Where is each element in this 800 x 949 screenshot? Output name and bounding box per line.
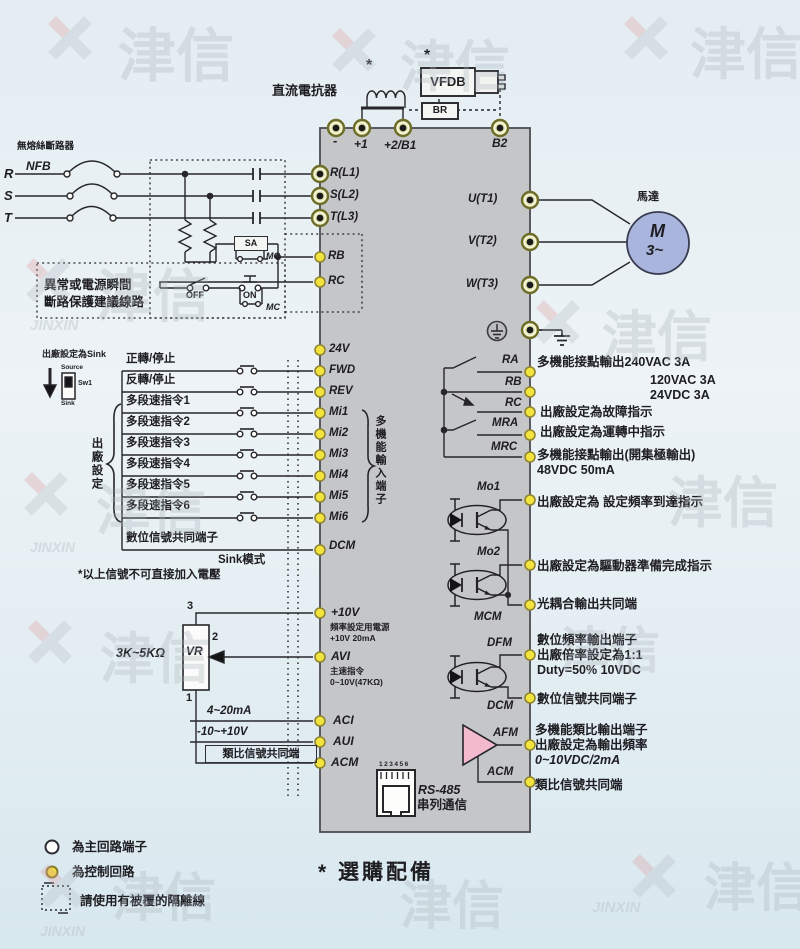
rl1-label: R(L1) (330, 168, 359, 180)
row-dcm-label: 數位信號共同端子 (126, 533, 218, 545)
phase-s-label: S (4, 189, 13, 202)
terminal-mra (525, 430, 535, 440)
afm-desc-3: 0~10VDC/2mA (535, 754, 620, 767)
mcm-label: MCM (474, 612, 501, 624)
mi4-label: Mi4 (329, 470, 348, 482)
terminal-ra (525, 367, 535, 377)
row-mi6-label: 多段速指令6 (126, 501, 190, 513)
star-vfdb: * (424, 48, 430, 64)
dcm-left-label: DCM (329, 541, 355, 553)
avi-label: AVI (331, 650, 350, 662)
row-fwd-label: 正轉/停止 (126, 354, 175, 366)
sa-unit: SA (234, 236, 268, 251)
mc-bottom-label: MC (266, 303, 280, 312)
row-mi4-label: 多段速指令4 (126, 459, 190, 471)
fwd-label: FWD (329, 365, 355, 377)
sw1-label: Sw1 (78, 380, 92, 387)
terminal-mi3 (315, 450, 325, 460)
terminal-mi6 (315, 513, 325, 523)
relay-desc-3: 24VDC 3A (650, 389, 710, 402)
vr-label: VR (186, 645, 203, 657)
terminal-rc-out (525, 407, 535, 417)
terminal-rev (315, 387, 325, 397)
terminal-10v (315, 608, 325, 618)
mra-label: MRA (492, 418, 518, 430)
terminal-plus2b1-label: +2/B1 (384, 139, 416, 151)
10v-label: +10V (331, 606, 359, 618)
star-reactor: * (366, 58, 372, 74)
terminal-plus1 (354, 120, 370, 136)
acm-right-label: ACM (487, 767, 513, 779)
mo2-desc: 出廠設定為驅動器準備完成指示 (537, 560, 712, 573)
terminal-dfm (525, 650, 535, 660)
terminal-rc (315, 277, 325, 287)
legend-shield-icon (42, 886, 70, 910)
mcm-desc: 光耦合輸出共同端 (537, 598, 637, 611)
vfdb-unit: VFDB (420, 67, 476, 97)
nfb-label: NFB (26, 160, 51, 172)
mi1-label: Mi1 (329, 407, 348, 419)
pot-pin2: 2 (212, 632, 218, 643)
afm-label: AFM (493, 728, 518, 740)
legend-optional: * 選購配備 (318, 862, 434, 883)
acm-desc: 類比信號共同端 (535, 779, 623, 792)
vt2-label: V(T2) (468, 236, 497, 248)
mrc-desc-2: 48VDC 50mA (537, 464, 615, 477)
motor-m: M (650, 222, 665, 240)
pot-pin1: 1 (186, 693, 192, 704)
10v-desc2: +10V 20mA (330, 634, 376, 643)
row-rev-label: 反轉/停止 (126, 375, 175, 387)
24v-label: 24V (329, 344, 349, 356)
mi5-label: Mi5 (329, 491, 348, 503)
mo2-label: Mo2 (477, 547, 500, 559)
dfm-desc-3: Duty=50% 10VDC (537, 664, 641, 677)
sink-note: 出廠設定為Sink (42, 350, 106, 359)
terminal-mi2 (315, 429, 325, 439)
terminal-s-l2 (312, 188, 328, 204)
relay-desc-2: 120VAC 3A (650, 374, 716, 387)
dfm-desc-1: 數位頻率輸出端子 (537, 634, 637, 647)
mi3-label: Mi3 (329, 449, 348, 461)
rs485-pins: 123456 (379, 762, 410, 769)
terminal-rb (315, 252, 325, 262)
pot-pin3: 3 (187, 601, 193, 612)
relay-desc-1: 多機能接點輸出240VAC 3A (537, 356, 690, 369)
terminal-rb-out (525, 387, 535, 397)
terminal-u-t1 (522, 192, 538, 208)
legend-control-terminal-icon (47, 867, 58, 878)
mi2-label: Mi2 (329, 428, 348, 440)
breaker-label: 無熔絲斷路器 (17, 142, 74, 152)
terminal-mrc (525, 452, 535, 462)
terminal-dcm-left (315, 545, 325, 555)
terminal-aci (315, 716, 325, 726)
factory-setting-label: 出廠設定 (90, 437, 102, 527)
rc-label: RC (328, 276, 345, 288)
acm-source-label: 類比信號共同端 (205, 745, 317, 763)
aci-label: ACI (333, 714, 354, 726)
terminal-mcm (525, 600, 535, 610)
rb-out-label: RB (505, 377, 522, 389)
row-mi3-label: 多段速指令3 (126, 438, 190, 450)
legend-main-terminal-icon (46, 841, 59, 854)
sl2-label: S(L2) (330, 190, 359, 202)
terminal-mi5 (315, 492, 325, 502)
off-label: OFF (186, 291, 204, 300)
rs485-label: 串列通信 (417, 799, 467, 812)
terminal-avi (315, 652, 325, 662)
mc-top-label: MC (266, 252, 280, 261)
rc-out-label: RC (505, 398, 522, 410)
mrc-label: MRC (491, 442, 517, 454)
terminal-mo1 (525, 495, 535, 505)
phase-t-label: T (4, 211, 12, 224)
terminal-minus-label: - (333, 134, 337, 147)
terminal-plus1-label: +1 (354, 138, 368, 150)
terminal-fwd (315, 366, 325, 376)
mi6-label: Mi6 (329, 512, 348, 524)
terminal-plus2-b1 (395, 120, 411, 136)
afm-desc-2: 出廠設定為輸出頻率 (535, 739, 648, 752)
terminal-mi4 (315, 471, 325, 481)
input-group-label: 多機能輸入端子 (374, 415, 385, 535)
terminal-acm-right (525, 777, 535, 787)
ra-label: RA (502, 355, 519, 367)
terminal-r-l1 (312, 166, 328, 182)
pot-value-label: 3K~5KΩ (116, 647, 165, 660)
signal-warning: *以上信號不可直接加入電壓 (78, 570, 220, 582)
phase-r-label: R (4, 167, 13, 180)
acm-left-label: ACM (331, 756, 358, 768)
rb-label: RB (328, 251, 345, 263)
protection-note-line1: 異常或電源瞬間 (44, 279, 132, 292)
protection-note-line2: 斷路保護建議線路 (44, 296, 144, 309)
aui-source-label: -10~+10V (197, 727, 248, 739)
source-label: Source (61, 365, 83, 372)
rc-desc: 出廠設定為故障指示 (540, 406, 653, 419)
motor-phase: 3~ (646, 243, 663, 258)
wiring-diagram: * 直流電抗器 * VFDB BR - +1 +2/B1 B2 無熔絲斷路器 R… (0, 0, 800, 949)
10v-desc1: 頻率設定用電源 (330, 623, 390, 632)
ut1-label: U(T1) (468, 194, 497, 206)
row-mi1-label: 多段速指令1 (126, 396, 190, 408)
legend-control-circuit: 為控制回路 (72, 866, 135, 879)
mo1-label: Mo1 (477, 482, 500, 494)
aci-source-label: 4~20mA (207, 706, 251, 718)
terminal-dcm-right (525, 693, 535, 703)
row-mi2-label: 多段速指令2 (126, 417, 190, 429)
tl3-label: T(L3) (330, 212, 358, 224)
terminal-t-l3 (312, 210, 328, 226)
dcm-right-label: DCM (487, 701, 513, 713)
terminal-b2 (492, 120, 508, 136)
avi-desc2: 0~10V(47KΩ) (330, 678, 383, 687)
motor-label: 馬達 (637, 192, 659, 203)
terminal-afm (525, 740, 535, 750)
aui-label: AUI (333, 735, 354, 747)
rev-label: REV (329, 386, 353, 398)
sink-label: Sink (61, 401, 75, 408)
br-unit: BR (421, 102, 459, 120)
wt3-label: W(T3) (466, 279, 498, 291)
terminal-v-t2 (522, 234, 538, 250)
terminal-mo2 (525, 560, 535, 570)
terminal-mi1 (315, 408, 325, 418)
legend-shielded: 請使用有被覆的隔離線 (80, 895, 205, 908)
avi-desc1: 主速指令 (330, 667, 364, 676)
legend-icons (42, 841, 70, 914)
on-label: ON (243, 291, 257, 300)
row-mi5-label: 多段速指令5 (126, 480, 190, 492)
sink-mode-label: Sink模式 (218, 555, 265, 567)
legend-main-terminal: 為主回路端子 (72, 841, 147, 854)
afm-desc-1: 多機能類比輸出端子 (535, 724, 648, 737)
terminal-ground (522, 322, 538, 338)
dcm-desc: 數位信號共同端子 (537, 693, 637, 706)
dc-reactor-label: 直流電抗器 (272, 84, 337, 97)
mrc-desc-1: 多機能接點輸出(開集極輸出) (537, 449, 695, 462)
mra-desc: 出廠設定為運轉中指示 (540, 426, 665, 439)
terminal-w-t3 (522, 277, 538, 293)
mo1-desc: 出廠設定為 設定頻率到達指示 (537, 496, 703, 509)
terminal-24v (315, 345, 325, 355)
dfm-label: DFM (487, 638, 512, 650)
terminal-b2-label: B2 (492, 137, 507, 149)
dfm-desc-2: 出廠倍率設定為1:1 (537, 649, 643, 662)
rs485-name: RS-485 (418, 784, 460, 797)
